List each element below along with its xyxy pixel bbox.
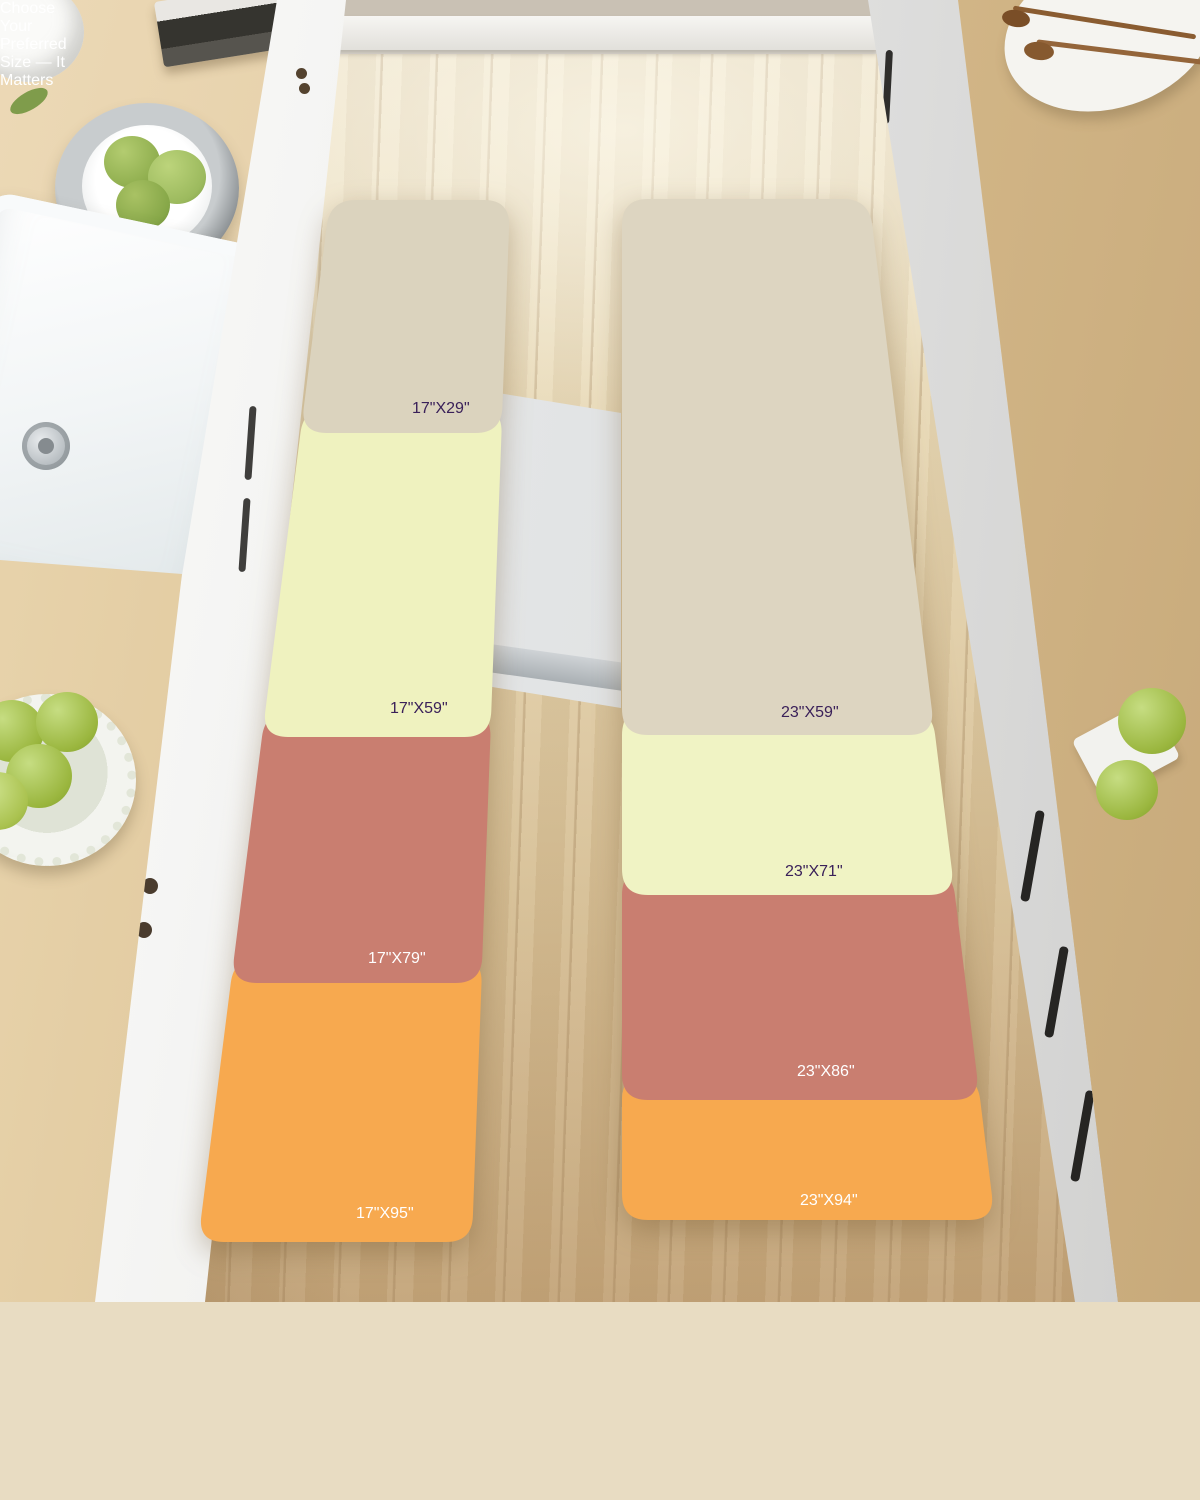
product-image-canvas: 17"X29"17"X59"17"X79"17"X95"23"X59"23"X7… (0, 0, 1200, 1500)
size-label-left-2: 17"X79" (368, 950, 426, 968)
size-labels-layer: 17"X29"17"X59"17"X79"17"X95"23"X59"23"X7… (0, 0, 1200, 1302)
banner-text: Choose Your Preferred Size — It Matters (0, 0, 67, 90)
size-label-right-3: 23"X94" (800, 1192, 858, 1210)
size-label-left-0: 17"X29" (412, 400, 470, 418)
size-label-left-3: 17"X95" (356, 1205, 414, 1223)
size-label-right-1: 23"X71" (785, 863, 843, 881)
size-label-left-1: 17"X59" (390, 700, 448, 718)
size-label-right-2: 23"X86" (797, 1063, 855, 1081)
size-label-right-0: 23"X59" (781, 704, 839, 722)
